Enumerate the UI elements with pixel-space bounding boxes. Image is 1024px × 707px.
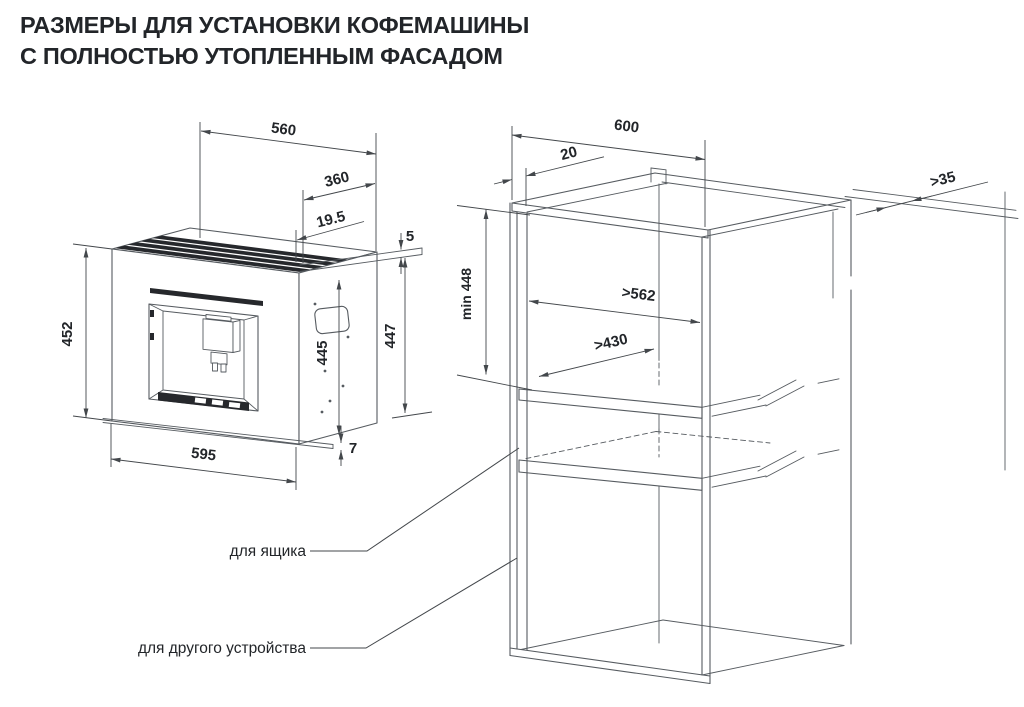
dim-front-offset-value: 20 <box>559 143 580 164</box>
label-other-device: для другого устройства <box>138 558 517 657</box>
dim-niche-height: min 448 <box>458 210 488 375</box>
dim-facade-width: 595 <box>111 445 296 484</box>
shelf-upper <box>519 361 839 419</box>
shelf-lower <box>519 429 839 490</box>
dim-inner-width: >562 <box>529 284 700 324</box>
dim-bottom-lip-value: 7 <box>349 440 357 457</box>
dim-facade-height-value: 452 <box>59 321 76 346</box>
dim-rear-gap-value: >35 <box>929 168 958 191</box>
coffee-machine-drawing: 452 560 360 19.5 5 447 <box>59 120 432 490</box>
rear-wall <box>845 190 1018 471</box>
dim-inner-depth-value: >430 <box>593 331 630 355</box>
dim-top-width-value: 560 <box>270 120 297 140</box>
dim-top-width: 560 <box>201 120 376 156</box>
label-other-device-text: для другого устройства <box>138 640 306 657</box>
cabinet-extension-lines <box>457 126 705 390</box>
dim-top-gap-value: 5 <box>406 228 414 245</box>
dim-inner-width-value: >562 <box>621 284 657 305</box>
label-drawer: для ящика <box>230 448 519 560</box>
dim-rear-gap: >35 <box>856 168 988 215</box>
dim-side-height-value: 447 <box>382 323 399 348</box>
dim-niche-height-value: min 448 <box>458 268 474 320</box>
dim-top-depth-value: 360 <box>323 168 351 191</box>
dim-rail-offset: 19.5 <box>297 208 364 240</box>
dim-bottom-lip: 7 <box>339 426 358 466</box>
dim-outer-width: 600 <box>512 117 705 161</box>
machine-side-face <box>299 252 377 444</box>
dim-front-offset: 20 <box>494 143 604 184</box>
dim-body-height-value: 445 <box>314 340 331 365</box>
diagram-page: РАЗМЕРЫ ДЛЯ УСТАНОВКИ КОФЕМАШИНЫ С ПОЛНО… <box>0 0 1024 707</box>
dim-facade-height: 452 <box>59 248 88 418</box>
installation-diagram: 452 560 360 19.5 5 447 <box>0 0 1024 707</box>
cabinet-bottom <box>510 620 844 684</box>
label-drawer-text: для ящика <box>230 543 307 560</box>
dim-outer-width-value: 600 <box>613 117 640 137</box>
dim-side-height: 447 <box>382 258 407 413</box>
side-handle <box>314 306 350 335</box>
dim-top-depth: 360 <box>304 168 375 200</box>
dim-facade-width-value: 595 <box>190 445 217 465</box>
